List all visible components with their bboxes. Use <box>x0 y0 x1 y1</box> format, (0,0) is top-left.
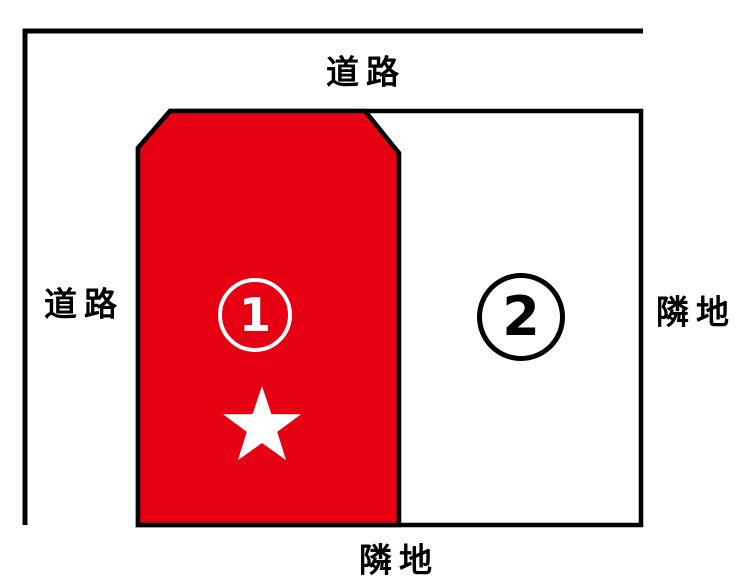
lot1-number-badge: 1 <box>218 278 292 352</box>
neighbor-label-right: 隣地 <box>656 296 736 329</box>
road-label-top: 道路 <box>326 56 406 89</box>
plot-diagram: 道路 道路 隣地 隣地 1 2 <box>0 0 754 584</box>
lot2-number-badge: 2 <box>477 273 565 361</box>
road-label-left: 道路 <box>44 288 124 321</box>
neighbor-label-bottom: 隣地 <box>359 544 439 577</box>
